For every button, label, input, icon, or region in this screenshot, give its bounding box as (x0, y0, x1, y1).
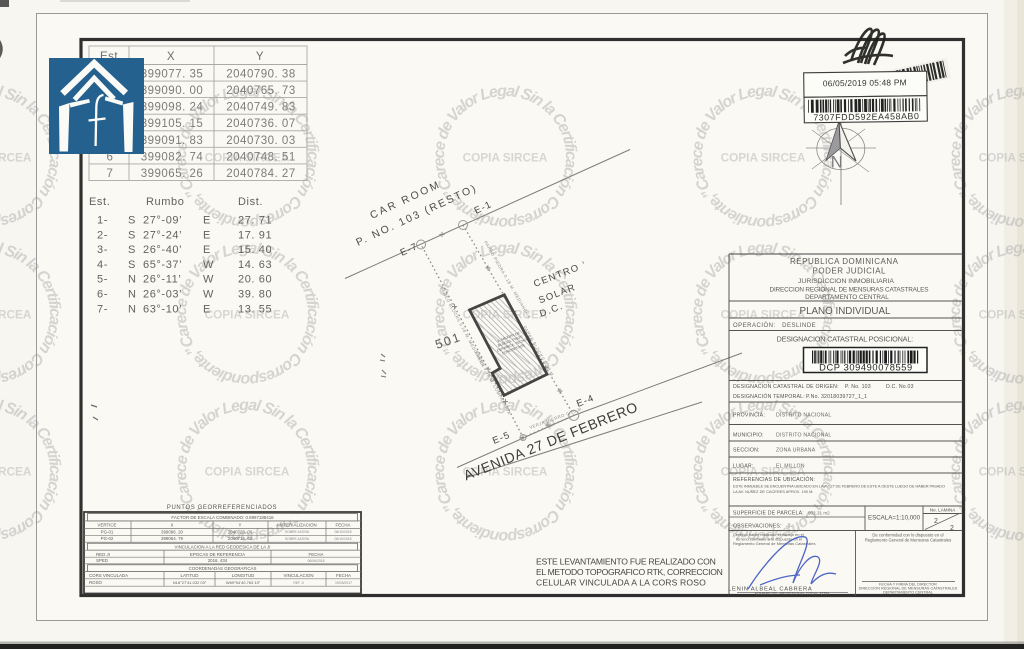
svg-text:VERTICE: VERTICE (98, 522, 117, 527)
svg-text:P. No. 103: P. No. 103 (845, 384, 871, 390)
svg-text:PG-01: PG-01 (101, 529, 114, 534)
svg-text:E: E (203, 244, 211, 256)
svg-text:7: 7 (107, 168, 114, 180)
svg-text:PUNTOS GEORREFERENCIADOS: PUNTOS GEORREFERENCIADOS (167, 505, 277, 511)
svg-text:DCP 309490078559: DCP 309490078559 (819, 362, 913, 372)
svg-text:X: X (171, 522, 174, 527)
svg-text:DISTRITO NACIONAL: DISTRITO NACIONAL (776, 413, 831, 419)
svg-text:06/06/2018: 06/06/2018 (308, 559, 325, 563)
svg-text:5-: 5- (97, 274, 108, 286)
svg-text:X: X (167, 51, 175, 63)
svg-text:399082. 74: 399082. 74 (141, 151, 204, 163)
svg-text:399098. 24: 399098. 24 (141, 102, 204, 114)
svg-text:FACTOR DE ESCALA COMBINADO: 0.: FACTOR DE ESCALA COMBINADO: 0.9997188416 (171, 515, 274, 520)
svg-text:W: W (203, 259, 214, 271)
svg-text:NOMBRE DEL PROFESIONAL CODIA:: NOMBRE DEL PROFESIONAL CODIA: 33759 (755, 592, 829, 596)
svg-text:2040749. 83: 2040749. 83 (226, 102, 295, 114)
svg-text:Rumbo: Rumbo (146, 196, 184, 208)
svg-text:N: N (128, 303, 137, 315)
svg-text:6-: 6- (97, 289, 108, 301)
svg-text:S: S (128, 244, 136, 256)
svg-text:COPIA SIRCEA: COPIA SIRCEA (0, 465, 32, 479)
svg-text:COORDENADAS GEOGRAFICAS: COORDENADAS GEOGRAFICAS (189, 566, 257, 571)
svg-text:D.C. No.03: D.C. No.03 (886, 384, 914, 390)
svg-text:7307FDD592EA458AB0: 7307FDD592EA458AB0 (813, 111, 919, 122)
svg-text:VINCULACION A LA RED GEODESICA: VINCULACION A LA RED GEODESICA DE LA JI (175, 545, 271, 550)
svg-text:JURISDICCION INMOBILIARIA: JURISDICCION INMOBILIARIA (798, 278, 894, 285)
svg-text:39. 80: 39. 80 (238, 289, 272, 301)
svg-text:399091. 83: 399091. 83 (141, 135, 204, 147)
svg-text:FECHA: FECHA (336, 573, 351, 578)
svg-text:27°-09’: 27°-09’ (143, 215, 182, 227)
svg-text:S: S (128, 229, 136, 241)
svg-text:MUNICIPIO:: MUNICIPIO: (733, 433, 764, 439)
svg-text:399096. 20: 399096. 20 (161, 529, 184, 534)
svg-text:PLANO INDIVIDUAL: PLANO INDIVIDUAL (800, 306, 891, 317)
svg-text:Y: Y (256, 51, 264, 63)
svg-text:3-: 3- (97, 244, 108, 256)
svg-text:13. 55: 13. 55 (238, 303, 272, 315)
svg-text:1-: 1- (97, 215, 108, 227)
svg-text:ROSO: ROSO (89, 580, 103, 585)
svg-text:COPIA SIRCEA: COPIA SIRCEA (979, 308, 1024, 322)
svg-text:2-: 2- (97, 229, 108, 241)
svg-text:SUPERFICIE DE PARCELA:: SUPERFICIE DE PARCELA: (733, 511, 804, 517)
svg-text:15. 40: 15. 40 (238, 244, 272, 256)
svg-text:MATERIALIZACION: MATERIALIZACION (277, 522, 316, 527)
svg-text:63°-10’: 63°-10’ (143, 303, 182, 315)
svg-text:4-: 4- (97, 259, 108, 271)
svg-text:PODER JUDICIAL: PODER JUDICIAL (813, 267, 887, 276)
svg-text:FECHA: FECHA (336, 522, 351, 527)
svg-text:2: 2 (950, 525, 954, 532)
svg-text:2040790. 38: 2040790. 38 (226, 69, 295, 81)
svg-text:COPIA SIRCEA: COPIA SIRCEA (721, 151, 806, 165)
svg-text:26°-11’: 26°-11’ (143, 274, 181, 286)
svg-text:LONGITUD: LONGITUD (232, 573, 255, 578)
svg-text:DESIGNACION CATASTRAL DE ORIGE: DESIGNACION CATASTRAL DE ORIGEN: (733, 384, 839, 390)
svg-text:06/10/2018: 06/10/2018 (335, 537, 352, 541)
svg-text:2040736. 07: 2040736. 07 (226, 118, 295, 130)
svg-text:ESTE LEVANTAMIENTO FUE REALIZA: ESTE LEVANTAMIENTO FUE REALIZADO CON (536, 557, 716, 567)
svg-text:EL MILLON: EL MILLON (776, 464, 805, 470)
svg-text:DEPARTAMENTO CENTRAL: DEPARTAMENTO CENTRAL (805, 294, 889, 301)
svg-text:-0-: -0- (786, 524, 792, 530)
svg-text:Reglamento General de Mensuras: Reglamento General de Mensuras Catastral… (733, 541, 816, 546)
svg-text:PG-02: PG-02 (101, 536, 114, 541)
svg-text:EL METODO TOPOGRAFICO RTK, COR: EL METODO TOPOGRAFICO RTK, CORRECCION (536, 567, 723, 577)
svg-text:26°-40’: 26°-40’ (143, 244, 182, 256)
svg-text:COPIA SIRCEA: COPIA SIRCEA (979, 151, 1024, 165)
svg-text:E: E (203, 303, 211, 315)
svg-text:FECHA: FECHA (309, 552, 324, 557)
svg-text:20. 60: 20. 60 (238, 274, 272, 286)
svg-text:CELULAR VINCULADA A LA CORS RO: CELULAR VINCULADA A LA CORS ROSO (536, 578, 706, 588)
svg-text:OBSERVACIONES:: OBSERVACIONES: (733, 524, 782, 530)
svg-text:COPIA SIRCEA: COPIA SIRCEA (721, 308, 806, 322)
svg-text:2040728. 00: 2040728. 00 (228, 529, 253, 534)
svg-text:7-: 7- (97, 303, 108, 315)
svg-text:P.No. 32018039727_1_1: P.No. 32018039727_1_1 (806, 394, 867, 400)
svg-text:REFERENCIAS DE UBICACIÓN:: REFERENCIAS DE UBICACIÓN: (733, 476, 815, 483)
svg-text:399077. 35: 399077. 35 (141, 69, 204, 81)
svg-text:27. 71: 27. 71 (238, 215, 272, 227)
svg-text:E: E (203, 215, 211, 227)
svg-text:S: S (128, 215, 136, 227)
svg-text:ESTE INMUEBLE SE ENCUENTRA UBI: ESTE INMUEBLE SE ENCUENTRA UBICADO EN LA… (733, 484, 945, 489)
svg-text:17. 91: 17. 91 (238, 229, 272, 241)
svg-text:LUGAR:: LUGAR: (733, 464, 754, 470)
svg-text:ZONA URBANA: ZONA URBANA (776, 448, 816, 454)
svg-text:26°-03’: 26°-03’ (143, 289, 182, 301)
svg-text:EPOCAS DE REFERENCIA: EPOCAS DE REFERENCIA (190, 552, 245, 557)
svg-text:W: W (203, 289, 214, 301)
svg-text:SECCION:: SECCION: (733, 448, 760, 454)
svg-text:399090. 00: 399090. 00 (141, 85, 204, 97)
svg-text:N18°27’41.032 03”: N18°27’41.032 03” (173, 580, 207, 585)
svg-text:RED JI: RED JI (96, 552, 110, 557)
svg-text:W69°54’40.763 10”: W69°54’40.763 10” (226, 580, 261, 585)
svg-text:2040765. 73: 2040765. 73 (226, 85, 295, 97)
svg-text:ESCALA=1:10,000: ESCALA=1:10,000 (868, 515, 921, 522)
svg-text:N: N (128, 289, 137, 301)
svg-text:2040730. 03: 2040730. 03 (226, 135, 295, 147)
svg-text:COPIA SIRCEA: COPIA SIRCEA (463, 151, 548, 165)
svg-text:PROVINCIA:: PROVINCIA: (733, 413, 765, 419)
svg-text:VINCULACION: VINCULACION (283, 573, 313, 578)
svg-text:LATITUD: LATITUD (181, 573, 199, 578)
svg-text:Reglamento General de Mensuras: Reglamento General de Mensuras Catastral… (865, 538, 951, 543)
svg-text:65°-37’: 65°-37’ (143, 259, 182, 271)
svg-text:2016. 434: 2016. 434 (208, 558, 228, 563)
svg-text:2040714. 62: 2040714. 62 (228, 536, 253, 541)
svg-text:DESIGNACIÓN TEMPORAL:: DESIGNACIÓN TEMPORAL: (733, 393, 805, 400)
svg-text:SOBRE ACERA: SOBRE ACERA (285, 537, 310, 541)
svg-text:399065. 26: 399065. 26 (141, 168, 204, 180)
svg-text:14. 63: 14. 63 (238, 259, 272, 271)
svg-text:2040784. 27: 2040784. 27 (226, 168, 295, 180)
svg-text:N: N (128, 274, 137, 286)
svg-text:06/10/2018: 06/10/2018 (335, 530, 352, 534)
svg-text:E: E (203, 229, 211, 241)
svg-text:Y: Y (239, 522, 242, 527)
svg-text:COPIA SIRCEA: COPIA SIRCEA (0, 151, 32, 165)
svg-text:19/03/2017: 19/03/2017 (335, 581, 352, 585)
svg-text:W: W (203, 274, 214, 286)
svg-text:DESIGNACION CATASTRAL POSICION: DESIGNACION CATASTRAL POSICIONAL: (777, 335, 914, 344)
svg-text:2040748. 51: 2040748. 51 (226, 151, 295, 163)
svg-text:27°-24’: 27°-24’ (143, 229, 182, 241)
svg-text:COPIA SIRCEA: COPIA SIRCEA (205, 465, 290, 479)
svg-text:Dist.: Dist. (238, 196, 263, 208)
svg-text:399064. 79: 399064. 79 (161, 536, 184, 541)
svg-text:CORS VINCULADA: CORS VINCULADA (89, 573, 128, 578)
svg-text:DEPARTAMENTO CENTRAL: DEPARTAMENTO CENTRAL (883, 591, 933, 595)
svg-text:REF JI: REF JI (293, 581, 303, 585)
svg-text:OPERACIÓN: DESLINDE: OPERACIÓN: DESLINDE (733, 322, 816, 329)
svg-text:399105. 15: 399105. 15 (141, 118, 204, 130)
svg-text:S: S (128, 259, 136, 271)
svg-text:DIRECCION REGIONAL DE MENSURAS: DIRECCION REGIONAL DE MENSURAS CATASTRAL… (770, 286, 929, 293)
svg-text:N: N (831, 154, 843, 172)
svg-text:Est.: Est. (89, 196, 110, 208)
svg-text:SPED: SPED (96, 558, 108, 563)
svg-text:COPIA SIRCEA: COPIA SIRCEA (979, 465, 1024, 479)
svg-text:No. LAMINA: No. LAMINA (930, 508, 956, 513)
svg-text:DISTRITO NACIONAL: DISTRITO NACIONAL (776, 433, 831, 439)
svg-text:COPIA SIRCEA: COPIA SIRCEA (0, 308, 32, 322)
svg-text:06/05/2019 05:48 PM: 06/05/2019 05:48 PM (823, 77, 907, 88)
svg-text:SOBRE ACERA: SOBRE ACERA (285, 530, 310, 534)
svg-text:902.31 m2: 902.31 m2 (808, 511, 830, 516)
svg-text:2: 2 (934, 518, 938, 525)
svg-text:REPUBLICA DOMINICANA: REPUBLICA DOMINICANA (790, 257, 899, 266)
svg-text:LA AV. NUÑEZ DE CACERES APROX.: LA AV. NUÑEZ DE CACERES APROX. 190 M. (733, 489, 813, 494)
